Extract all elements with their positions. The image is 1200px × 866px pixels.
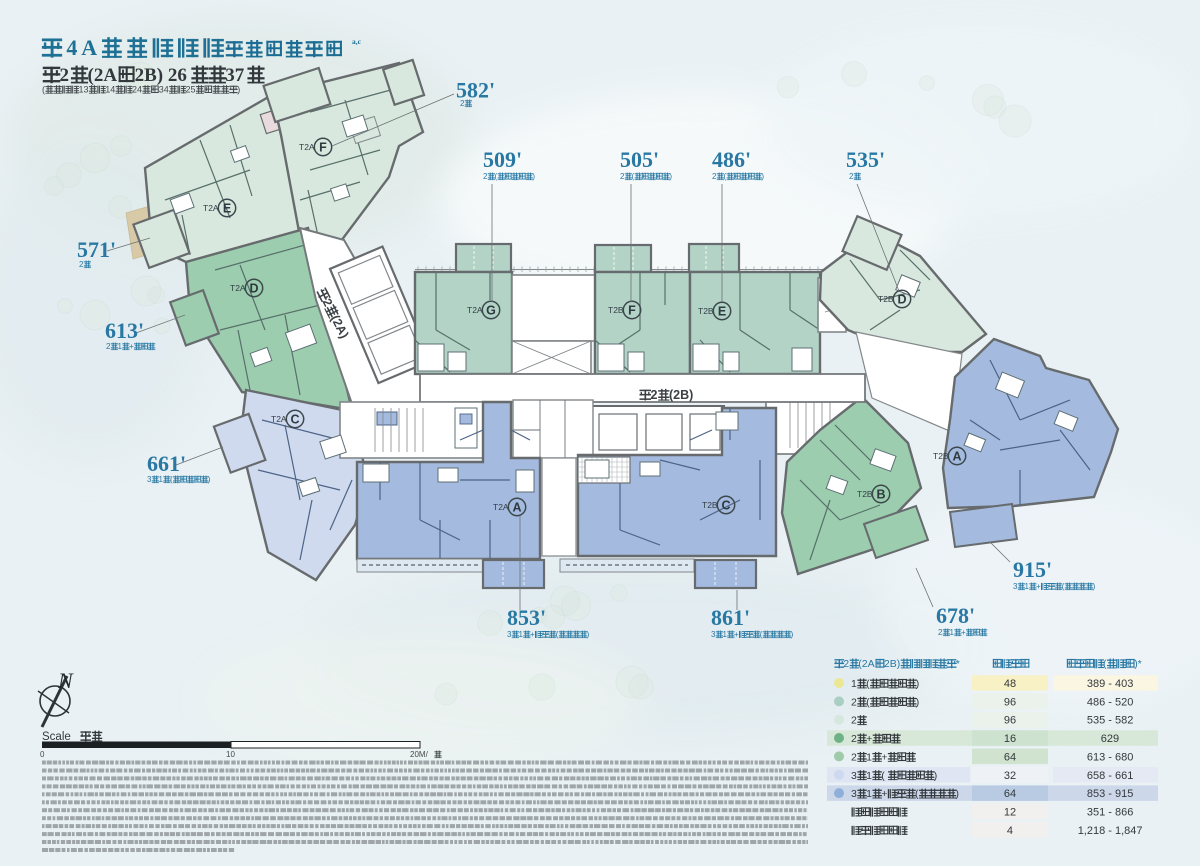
svg-text:(: ( [881,770,885,782]
svg-text:(: ( [724,172,727,181]
svg-text:2: 2 [849,172,854,181]
svg-text:1: 1 [866,788,872,800]
svg-text:): ) [791,630,794,639]
svg-text:32: 32 [1004,770,1016,782]
svg-text:861': 861' [711,605,750,630]
svg-text:+: + [734,630,739,639]
svg-text:535 - 582: 535 - 582 [1087,715,1133,727]
svg-text:853 - 915: 853 - 915 [1087,788,1133,800]
svg-text:T2B: T2B [857,489,873,499]
svg-text:T2B: T2B [933,451,949,461]
svg-text:(: ( [495,172,498,181]
svg-text:F: F [628,303,636,317]
svg-text:3: 3 [711,630,716,639]
svg-text:613': 613' [105,318,144,343]
svg-text:): ) [934,770,938,782]
svg-text:Scale: Scale [42,731,71,743]
svg-text:T2A: T2A [230,283,246,293]
svg-text:(: ( [42,85,45,95]
svg-text:T2A: T2A [493,502,509,512]
svg-text:2: 2 [851,733,857,745]
svg-text:678': 678' [936,603,975,628]
svg-text:): ) [237,85,240,95]
svg-text:64: 64 [1004,751,1016,763]
svg-text:+: + [881,751,887,763]
svg-text:E: E [223,201,231,215]
svg-text:(: ( [1062,582,1065,591]
svg-text:351 - 866: 351 - 866 [1087,807,1133,819]
svg-text:(: ( [1103,658,1107,670]
svg-text:2: 2 [843,658,849,670]
svg-text:+: + [530,630,535,639]
svg-text:571': 571' [77,237,116,262]
svg-text:(: ( [556,630,559,639]
svg-text:629: 629 [1101,733,1119,745]
svg-text:2: 2 [60,65,70,86]
svg-text:(2A: (2A [858,658,874,670]
svg-text:T2A: T2A [203,203,219,213]
svg-text:E: E [718,304,726,318]
svg-text:(: ( [866,678,870,690]
svg-text:2: 2 [712,172,717,181]
svg-text:(: ( [866,696,870,708]
svg-text:389 - 403: 389 - 403 [1087,678,1133,690]
svg-text:613 - 680: 613 - 680 [1087,751,1133,763]
svg-text:+: + [866,733,872,745]
svg-text:): ) [761,172,764,181]
svg-text:1: 1 [1025,582,1030,591]
svg-text:+: + [961,628,966,637]
svg-text:1: 1 [950,628,955,637]
svg-text:T2B: T2B [878,294,894,304]
svg-text:3: 3 [507,630,512,639]
svg-text:+: + [129,342,134,351]
svg-text:64: 64 [1004,788,1016,800]
svg-text:1: 1 [866,770,872,782]
svg-text:): ) [208,475,211,484]
svg-text:C: C [721,498,730,512]
svg-text:N: N [57,668,74,693]
svg-text:T2A: T2A [299,142,315,152]
svg-text:1: 1 [723,630,728,639]
svg-text:): ) [1093,582,1096,591]
svg-text:658 - 661: 658 - 661 [1087,770,1133,782]
svg-text:3: 3 [851,788,857,800]
svg-text:): ) [587,630,590,639]
svg-text:A: A [952,449,961,463]
svg-text:661': 661' [147,451,186,476]
svg-text:14: 14 [105,85,115,95]
svg-text:B: B [876,487,885,501]
svg-text:T2B: T2B [702,500,718,510]
svg-text:): ) [916,678,920,690]
svg-text:+: + [1036,582,1041,591]
svg-text:): ) [669,172,672,181]
svg-text:(: ( [760,630,763,639]
svg-text:(2B): (2B) [669,388,693,402]
svg-text:1: 1 [118,342,123,351]
svg-text:2B): 2B) [884,658,900,670]
svg-text:2: 2 [851,696,857,708]
svg-text:1: 1 [866,751,872,763]
svg-text:37: 37 [225,65,245,86]
svg-text:505': 505' [620,147,659,172]
svg-text:535': 535' [846,147,885,172]
svg-text:34: 34 [159,85,169,95]
svg-text:F: F [319,140,327,154]
svg-text:2: 2 [651,388,658,402]
svg-text:486 - 520: 486 - 520 [1087,696,1133,708]
svg-text:486': 486' [712,147,751,172]
svg-text:3: 3 [147,475,152,484]
svg-text:509': 509' [483,147,522,172]
svg-text:2: 2 [851,715,857,727]
svg-text:0: 0 [40,750,45,759]
svg-text:T2A: T2A [271,414,287,424]
svg-text:2: 2 [106,342,111,351]
svg-text:2: 2 [938,628,943,637]
svg-text:4A: 4A [66,35,101,60]
svg-text:3: 3 [1013,582,1018,591]
svg-text:T2A: T2A [467,305,483,315]
svg-text:915': 915' [1013,557,1052,582]
svg-text:D: D [249,281,258,295]
svg-text:1,218 - 1,847: 1,218 - 1,847 [1078,825,1143,837]
svg-text:A: A [512,500,521,514]
svg-text:13: 13 [79,85,89,95]
svg-text:2B) 26: 2B) 26 [135,65,187,86]
svg-text:24: 24 [132,85,142,95]
svg-text:1: 1 [159,475,164,484]
svg-text:4: 4 [1007,825,1013,837]
svg-text:): ) [956,788,960,800]
svg-text:a,c: a,c [352,37,362,46]
svg-text:(: ( [632,172,635,181]
svg-text:25: 25 [186,85,196,95]
svg-text:): ) [916,696,920,708]
svg-text:20M/: 20M/ [410,750,429,759]
svg-text:853': 853' [507,605,546,630]
svg-text:10: 10 [226,750,235,759]
svg-text:): ) [532,172,535,181]
svg-text:*: * [956,658,960,670]
svg-text:48: 48 [1004,678,1016,690]
svg-text:1: 1 [519,630,524,639]
svg-text:12: 12 [1004,807,1016,819]
svg-text:D: D [897,292,906,306]
svg-text:T2B: T2B [608,305,624,315]
svg-text:(: ( [170,475,173,484]
svg-text:T2B: T2B [698,306,714,316]
svg-text:2: 2 [483,172,488,181]
svg-text:96: 96 [1004,696,1016,708]
svg-text:(: ( [915,788,919,800]
svg-text:2: 2 [851,751,857,763]
svg-text:2: 2 [620,172,625,181]
svg-text:2: 2 [79,260,84,269]
svg-text:(2A: (2A [88,65,118,86]
svg-text:96: 96 [1004,715,1016,727]
svg-text:+: + [881,788,887,800]
svg-text:2: 2 [460,99,465,108]
svg-text:G: G [486,303,496,317]
svg-text:16: 16 [1004,733,1016,745]
svg-text:3: 3 [851,770,857,782]
svg-text:)*: )* [1134,658,1142,670]
svg-text:1: 1 [851,678,857,690]
svg-text:C: C [290,412,299,426]
